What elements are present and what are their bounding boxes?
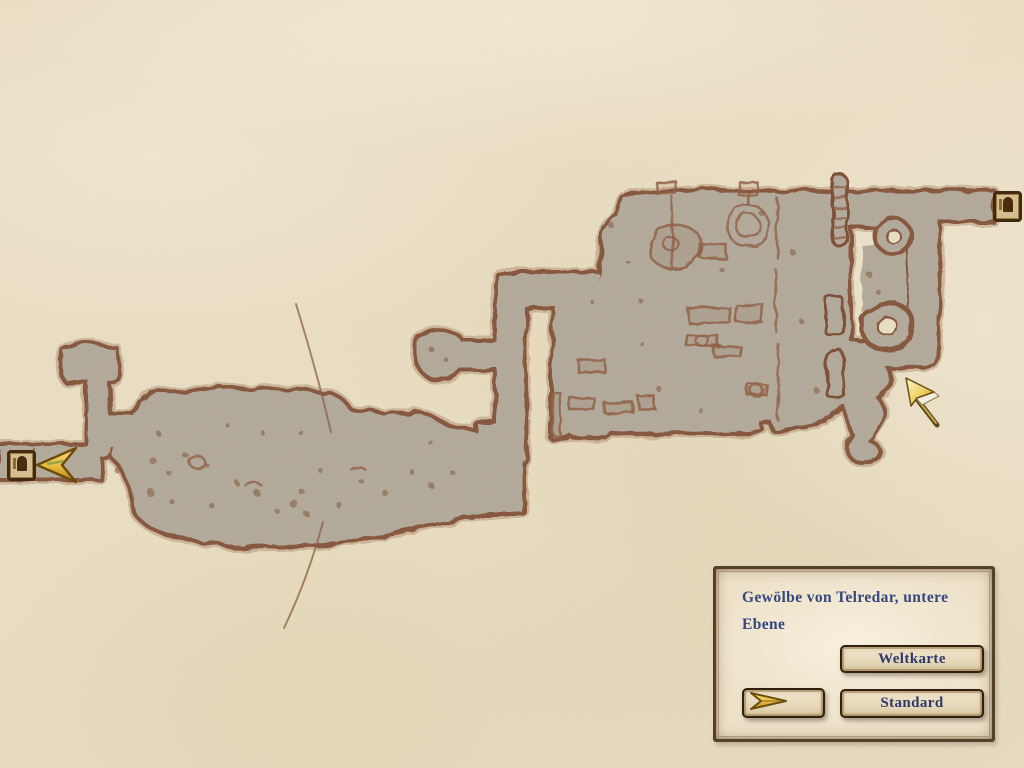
oblivion-local-map-screen: Gewölbe von Telredar, untere Ebene Weltk… bbox=[0, 0, 1024, 768]
map-info-panel: Gewölbe von Telredar, untere Ebene Weltk… bbox=[713, 566, 995, 742]
world-map-button-label: Weltkarte bbox=[878, 651, 946, 668]
door-icon-west bbox=[7, 450, 36, 481]
location-title: Gewölbe von Telredar, untere Ebene bbox=[742, 584, 982, 638]
standard-map-button[interactable]: Standard bbox=[840, 689, 984, 718]
standard-button-label: Standard bbox=[880, 695, 943, 712]
gold-arrow-icon bbox=[744, 690, 790, 712]
world-map-button[interactable]: Weltkarte bbox=[840, 645, 984, 673]
door-icon-northeast bbox=[993, 191, 1022, 222]
center-on-player-button[interactable] bbox=[742, 688, 825, 718]
